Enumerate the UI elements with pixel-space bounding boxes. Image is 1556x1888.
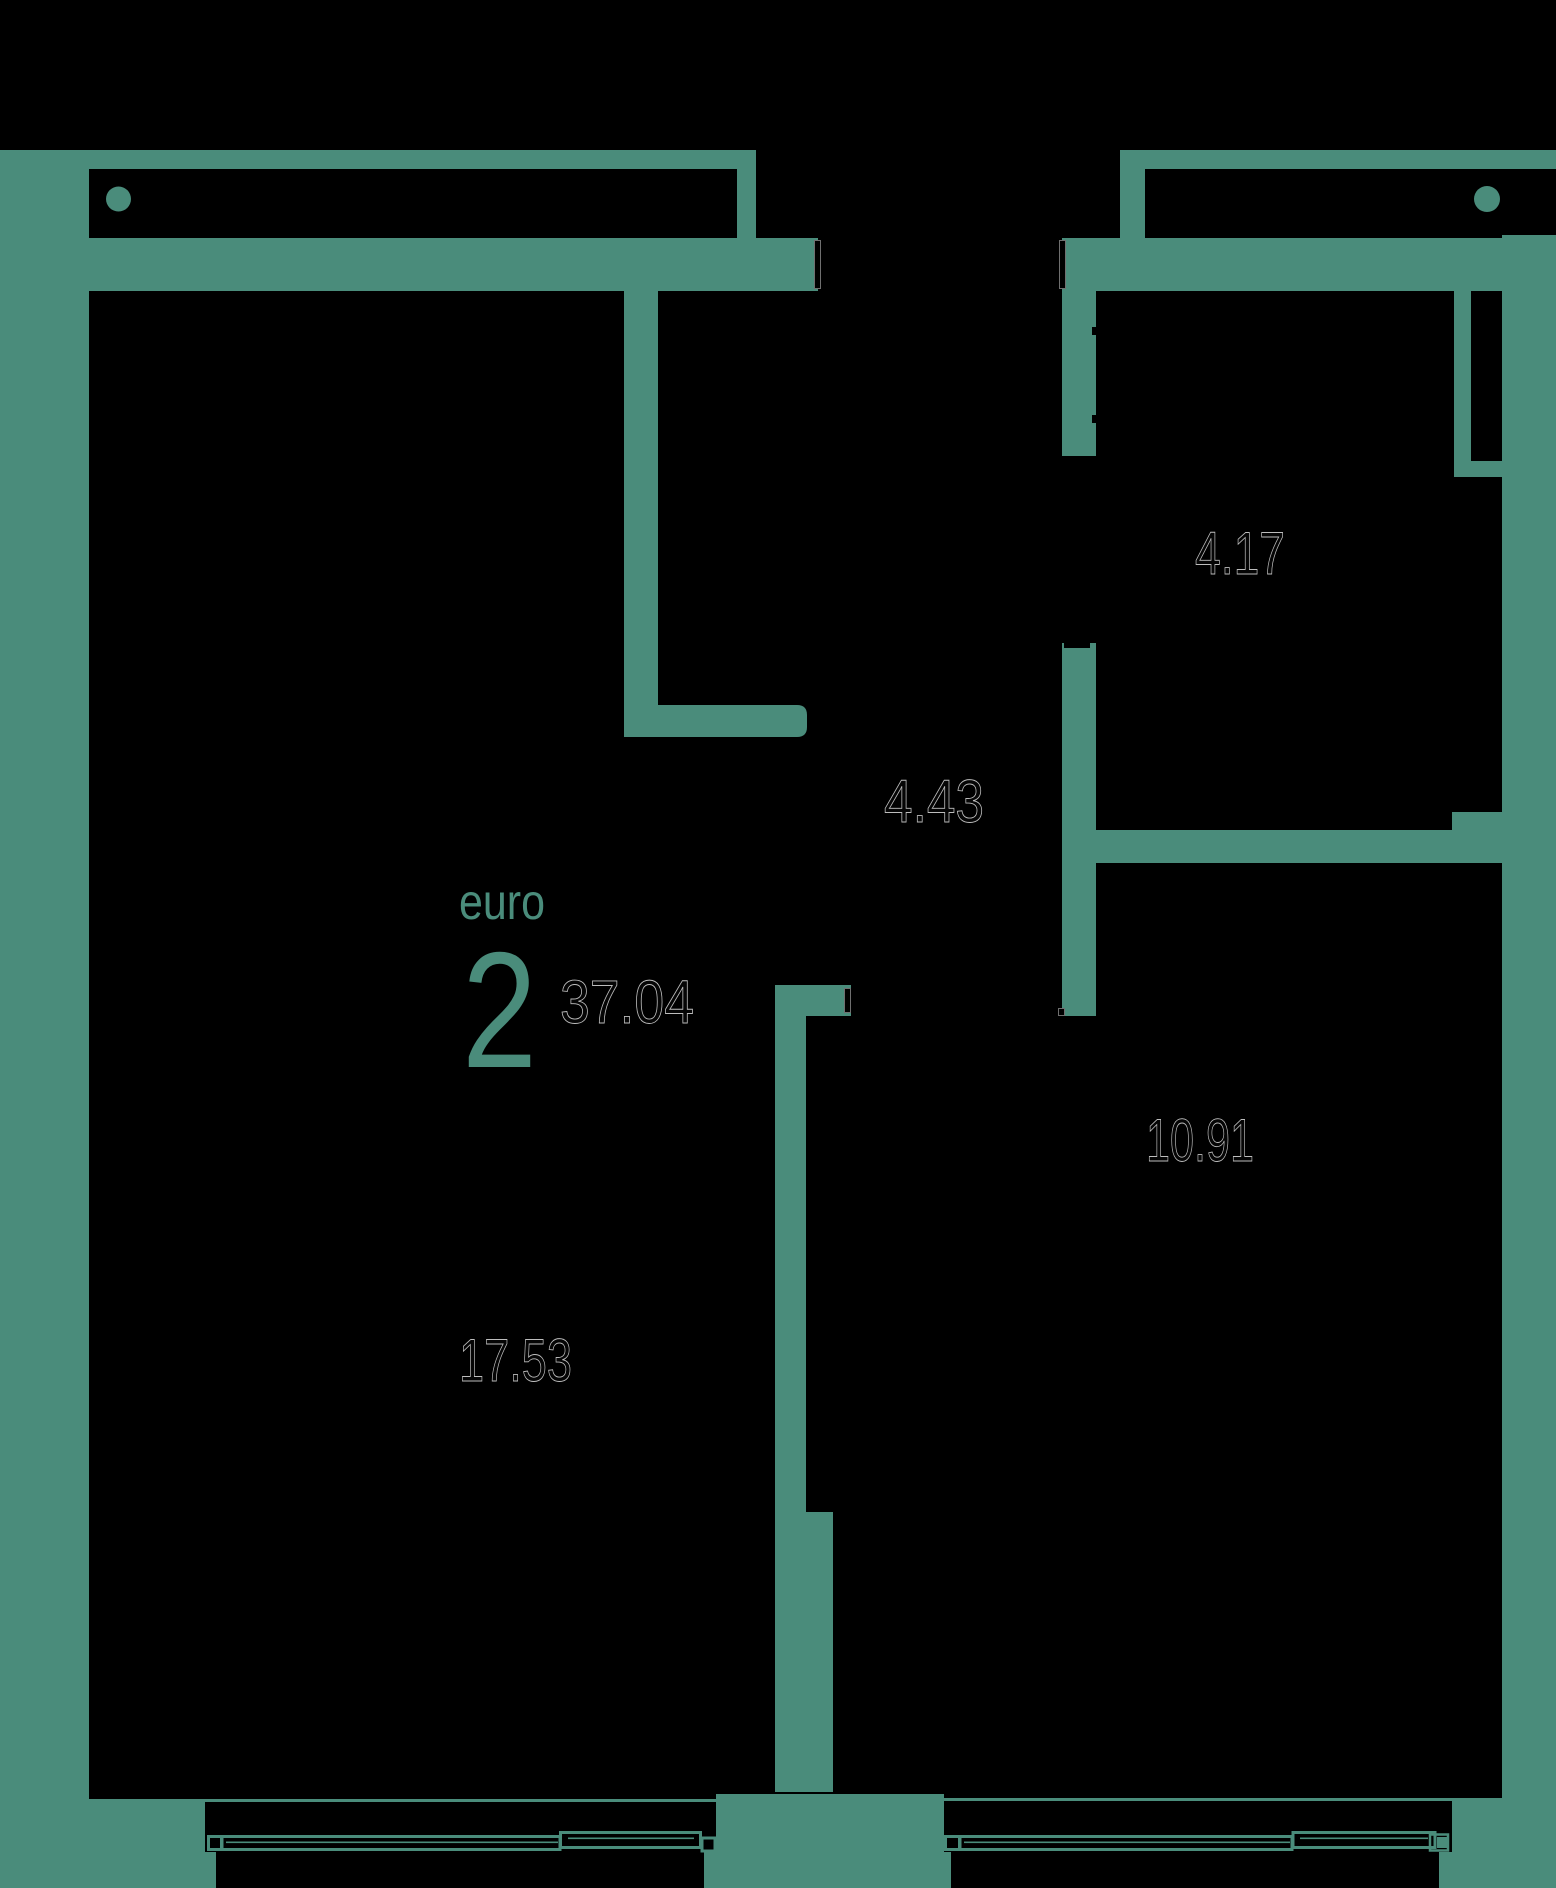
svg-text:4.43: 4.43 [884,768,984,835]
svg-text:37.04: 37.04 [560,968,694,1036]
svg-text:2: 2 [462,918,537,1102]
svg-text:17.53: 17.53 [459,1327,572,1394]
svg-text:10.91: 10.91 [1146,1107,1254,1174]
svg-text:4.17: 4.17 [1195,520,1285,587]
